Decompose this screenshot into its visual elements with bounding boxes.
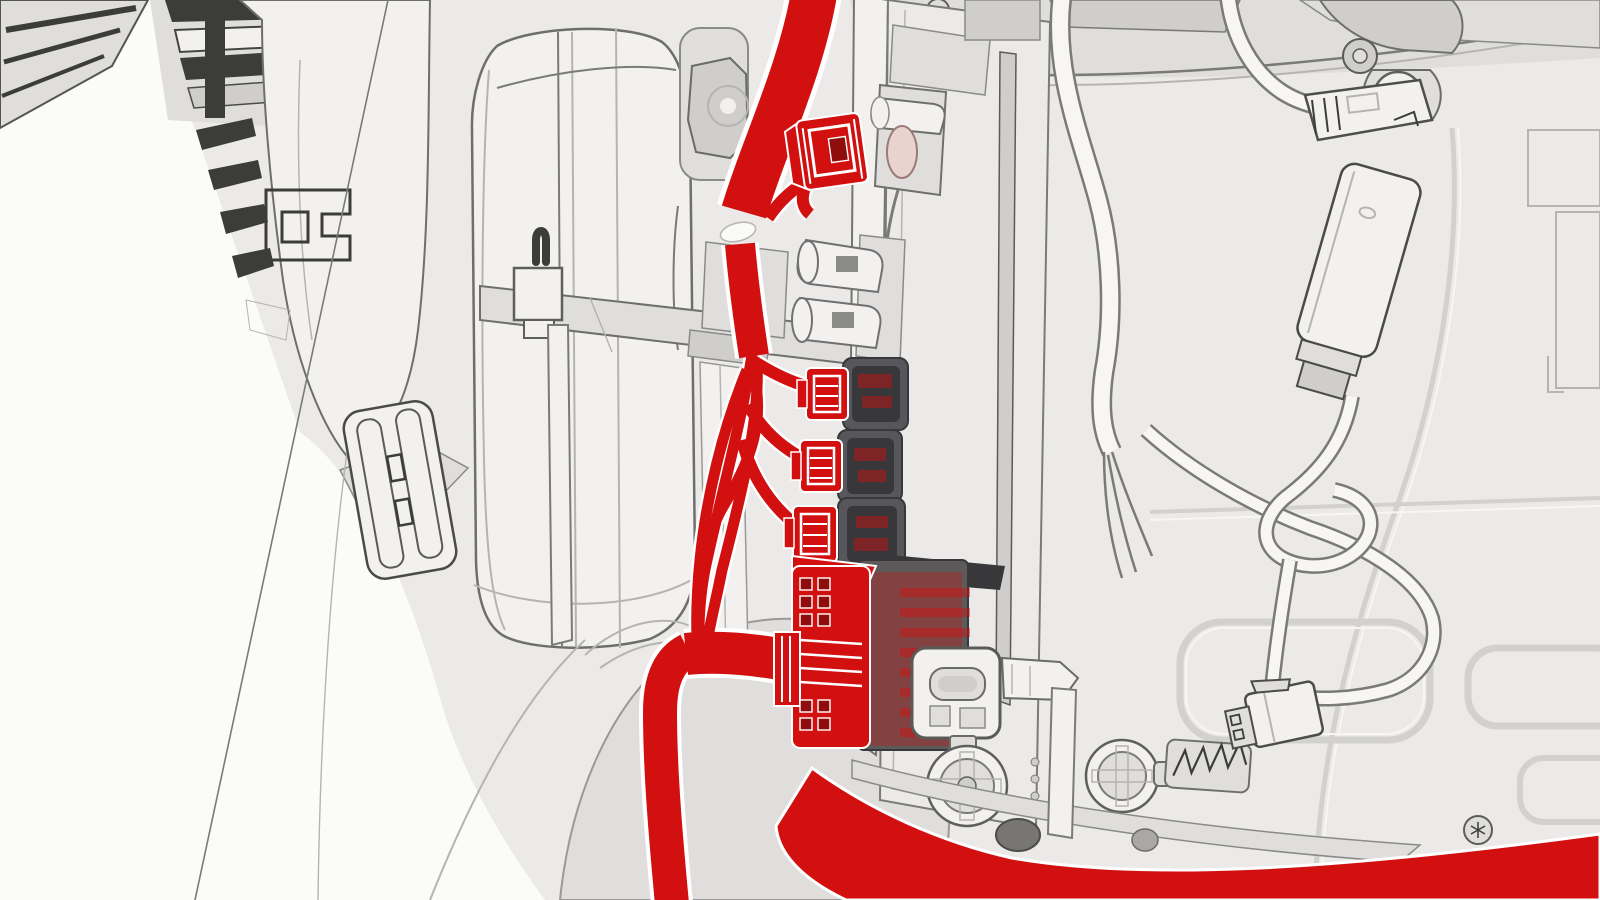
coax-connector-plugged bbox=[784, 112, 869, 192]
hinge-bracket bbox=[1050, 0, 1240, 32]
usb-c-receptacle bbox=[912, 648, 1000, 738]
panel-oval-hole bbox=[996, 819, 1040, 851]
strap-hanging-band bbox=[548, 325, 572, 645]
coax-socket-face bbox=[887, 126, 917, 178]
illustration-canvas bbox=[0, 0, 1600, 900]
torx-screw-icon bbox=[1464, 816, 1492, 844]
technical-illustration bbox=[0, 0, 1600, 900]
strap-clip bbox=[514, 268, 562, 320]
